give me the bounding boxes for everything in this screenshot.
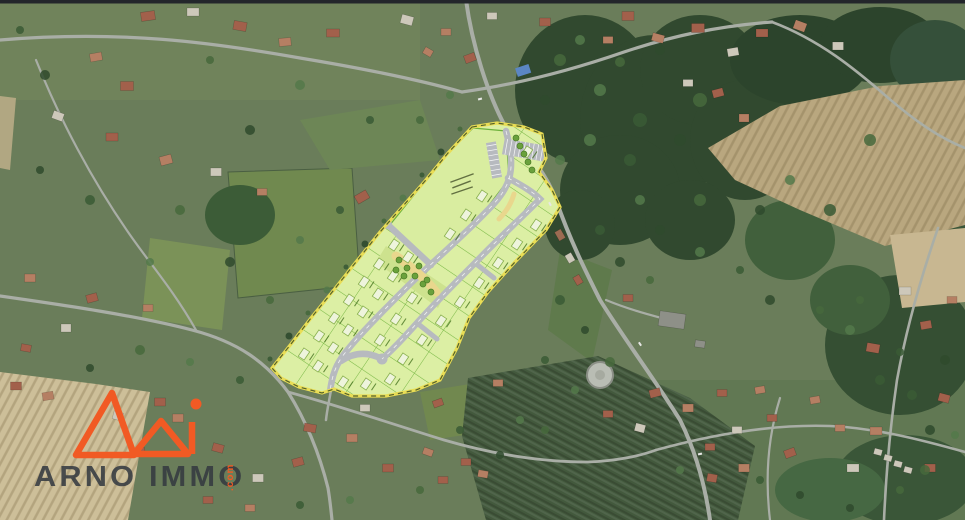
- park-tree: [393, 267, 399, 273]
- house: [603, 411, 613, 418]
- park-tree: [513, 135, 519, 141]
- tree: [856, 296, 864, 304]
- house: [203, 497, 213, 504]
- hedge-tree: [286, 333, 293, 340]
- hedge-tree: [324, 287, 331, 294]
- park-tree: [525, 159, 531, 165]
- house: [61, 324, 71, 332]
- tree: [655, 45, 665, 55]
- tree: [295, 80, 305, 90]
- house: [754, 386, 765, 395]
- tree: [416, 116, 424, 124]
- hedge-tree: [344, 265, 349, 270]
- tree: [605, 357, 615, 367]
- tree: [581, 326, 589, 334]
- house: [257, 189, 267, 196]
- satellite-map: [0, 0, 965, 520]
- hedge-tree: [362, 241, 369, 248]
- house: [11, 382, 22, 390]
- house: [493, 380, 503, 387]
- tree: [845, 325, 855, 335]
- house: [692, 24, 705, 33]
- tree: [624, 154, 636, 166]
- park-tree: [404, 265, 410, 271]
- tree: [496, 451, 504, 459]
- house: [327, 29, 340, 37]
- tree: [736, 266, 744, 274]
- tree: [796, 491, 804, 499]
- tree: [186, 358, 194, 366]
- park-tree: [416, 263, 422, 269]
- tree: [571, 386, 579, 394]
- tree: [633, 113, 647, 127]
- house: [732, 427, 742, 434]
- tree: [646, 276, 654, 284]
- house: [705, 444, 715, 451]
- house: [279, 37, 292, 46]
- tree: [135, 345, 145, 355]
- house: [25, 274, 36, 282]
- house: [347, 434, 358, 442]
- house: [245, 505, 255, 512]
- house: [717, 390, 727, 397]
- tree: [864, 134, 876, 146]
- tree: [920, 465, 930, 475]
- tree: [756, 476, 764, 484]
- tree: [516, 416, 524, 424]
- house: [683, 80, 693, 87]
- tree: [676, 466, 684, 474]
- tree: [85, 195, 95, 205]
- house: [233, 20, 247, 31]
- tree: [693, 93, 707, 107]
- tree: [584, 134, 596, 146]
- park-tree: [396, 257, 402, 263]
- tree: [765, 295, 775, 305]
- house: [866, 342, 880, 353]
- house: [143, 305, 153, 312]
- park-tree: [428, 289, 434, 295]
- top-bar: [0, 0, 965, 4]
- tree: [695, 247, 705, 257]
- tree: [245, 125, 255, 135]
- tree: [540, 95, 550, 105]
- house: [920, 320, 932, 330]
- house: [739, 464, 750, 472]
- house: [847, 464, 859, 472]
- brand-tld: .com: [225, 464, 236, 491]
- house: [809, 396, 820, 405]
- tree: [595, 225, 605, 235]
- park-tree: [529, 167, 535, 173]
- house: [477, 470, 488, 479]
- park-tree: [412, 273, 418, 279]
- hedge-tree: [458, 127, 463, 132]
- tree: [296, 236, 304, 244]
- house: [767, 415, 777, 422]
- tree: [896, 486, 904, 494]
- hedge-tree: [400, 195, 407, 202]
- tree: [951, 431, 959, 439]
- hedge-tree: [306, 311, 311, 316]
- house: [727, 47, 739, 57]
- house: [438, 477, 448, 484]
- park-tree: [521, 151, 527, 157]
- tree: [816, 306, 824, 314]
- tree: [146, 258, 154, 266]
- park-tree: [424, 277, 430, 283]
- house: [603, 37, 613, 44]
- house: [253, 474, 264, 482]
- house: [739, 114, 749, 122]
- tree: [541, 426, 549, 434]
- brand-wordmark: ARNO IMMO: [34, 461, 245, 494]
- house: [899, 287, 911, 295]
- house: [303, 423, 316, 433]
- house: [706, 473, 717, 483]
- tree: [86, 364, 94, 372]
- house: [360, 405, 370, 412]
- tree: [925, 425, 935, 435]
- house: [211, 168, 222, 176]
- tree: [635, 195, 645, 205]
- house: [756, 29, 768, 37]
- tree: [225, 257, 235, 267]
- tree: [416, 486, 424, 494]
- house: [947, 297, 957, 304]
- tree: [555, 155, 565, 165]
- tree: [575, 35, 585, 45]
- logo-i-dot: [191, 399, 202, 410]
- house: [622, 12, 634, 21]
- tree: [266, 296, 274, 304]
- satellite-listing-image: ARNO IMMO .com: [0, 0, 965, 520]
- tree: [175, 205, 185, 215]
- tree: [694, 194, 706, 206]
- house: [187, 8, 199, 16]
- tree: [555, 295, 565, 305]
- tree: [206, 56, 214, 64]
- house: [140, 11, 155, 22]
- house: [383, 464, 394, 472]
- tree: [875, 375, 885, 385]
- tree: [674, 134, 686, 146]
- hedge-tree: [438, 149, 445, 156]
- tree: [824, 204, 836, 216]
- tree: [541, 356, 549, 364]
- house: [89, 52, 102, 62]
- house: [20, 344, 31, 353]
- tree: [554, 54, 566, 66]
- tree: [346, 496, 354, 504]
- park-tree: [517, 143, 523, 149]
- house: [121, 82, 134, 91]
- tree: [615, 257, 625, 267]
- house: [173, 414, 184, 422]
- hedge-tree: [420, 173, 425, 178]
- house: [623, 295, 633, 302]
- house: [441, 29, 451, 36]
- tree: [846, 504, 854, 512]
- house: [870, 427, 882, 435]
- house: [461, 459, 471, 466]
- house: [487, 13, 497, 20]
- house: [42, 391, 54, 401]
- tree: [940, 355, 950, 365]
- tree: [236, 376, 244, 384]
- tree: [896, 348, 904, 356]
- tree: [366, 116, 374, 124]
- tree: [36, 166, 44, 174]
- hedge-tree: [382, 219, 387, 224]
- house: [695, 340, 706, 348]
- house: [155, 398, 166, 406]
- tree: [785, 175, 795, 185]
- house: [106, 133, 118, 141]
- house: [833, 42, 844, 50]
- house: [683, 404, 694, 412]
- house: [540, 18, 551, 26]
- tree: [594, 84, 606, 96]
- tree: [655, 225, 665, 235]
- park-tree: [401, 273, 407, 279]
- tree: [446, 91, 454, 99]
- tree: [16, 26, 24, 34]
- house: [835, 425, 845, 432]
- tree: [615, 57, 625, 67]
- tree: [40, 70, 50, 80]
- tree: [755, 205, 765, 215]
- tree: [296, 501, 304, 509]
- hedge-tree: [268, 357, 273, 362]
- tree: [336, 206, 344, 214]
- tree: [907, 390, 917, 400]
- tree: [456, 426, 464, 434]
